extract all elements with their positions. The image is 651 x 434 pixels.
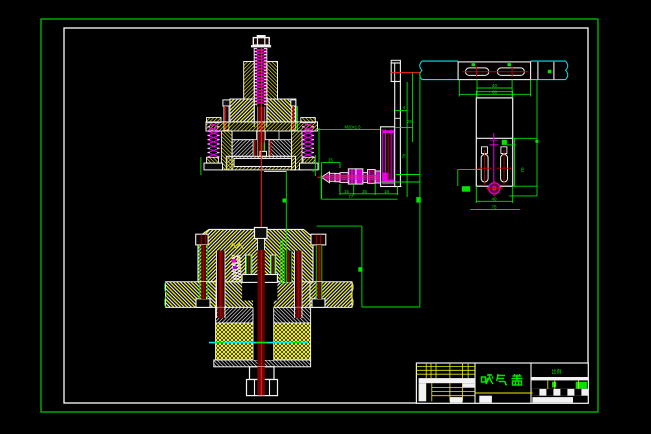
svg-text:40: 40 (491, 196, 497, 201)
svg-text:70: 70 (520, 167, 525, 173)
svg-text:75: 75 (491, 205, 497, 210)
svg-text:35: 35 (362, 189, 367, 194)
svg-text:18: 18 (384, 189, 389, 194)
svg-text:40: 40 (492, 83, 498, 88)
svg-text:M20x1.5: M20x1.5 (344, 125, 361, 130)
svg-text:26: 26 (407, 119, 412, 124)
svg-text:比例: 比例 (551, 369, 561, 376)
svg-text:77: 77 (348, 194, 354, 199)
svg-text:76: 76 (402, 153, 407, 158)
svg-text:25: 25 (328, 158, 333, 163)
